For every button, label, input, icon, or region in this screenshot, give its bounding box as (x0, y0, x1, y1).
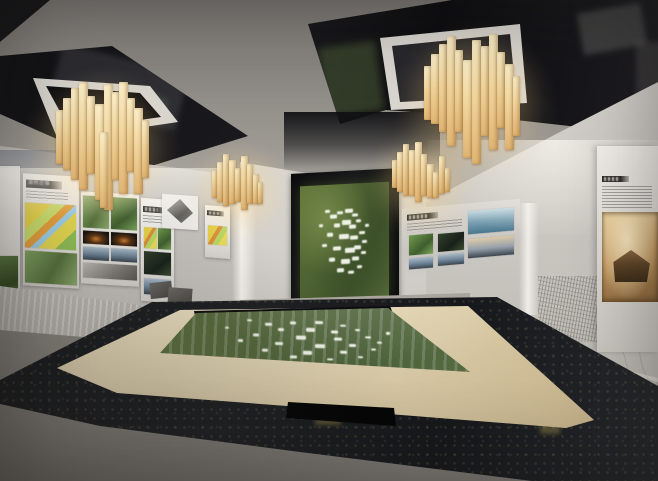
map-building-speckle (356, 220, 361, 223)
green-plan-image (409, 233, 433, 255)
map-building-speckle (253, 333, 259, 336)
photo-image (83, 246, 109, 261)
map-building-speckle (357, 265, 362, 268)
map-building-speckle (371, 348, 376, 350)
map-building-speckle (337, 268, 344, 272)
map-building-speckle (349, 344, 356, 347)
sand-table-map-buildings (160, 302, 470, 378)
map-building-speckle (345, 209, 353, 213)
blurred-title-text (604, 177, 620, 181)
map-building-speckle (296, 335, 306, 339)
map-building-speckle (325, 210, 330, 213)
map-building-speckle (340, 350, 347, 353)
map-building-speckle (341, 259, 350, 264)
exhibition-hall-render: 湖熟古镇 (0, 0, 658, 481)
map-building-speckle (315, 344, 325, 348)
map-building-speckle (349, 224, 356, 228)
map-building-speckle (265, 322, 272, 325)
panel-body-text (602, 186, 652, 208)
roof-artifact (610, 250, 652, 282)
map-building-speckle (315, 321, 323, 324)
map-building-speckle (331, 331, 338, 334)
map-building-speckle (290, 322, 296, 324)
map-building-speckle (358, 356, 363, 358)
photo-image (438, 253, 464, 266)
spotlight-wash (0, 168, 242, 218)
soffit-shadow (284, 112, 440, 172)
map-building-speckle (262, 348, 268, 351)
map-building-speckle (365, 336, 371, 338)
night-photo-image (111, 232, 137, 247)
map-building-speckle (348, 270, 354, 273)
photo-image (111, 248, 137, 263)
photo-image (409, 256, 433, 269)
map-building-speckle (354, 245, 361, 249)
map-building-speckle (319, 224, 323, 227)
map-building-speckle (365, 224, 369, 227)
map-building-speckle (386, 332, 390, 334)
artifact-niche (602, 212, 658, 302)
map-building-speckle (340, 324, 346, 326)
map-building-speckle (359, 231, 365, 234)
map-building-speckle (345, 247, 355, 253)
main-screen (291, 168, 399, 313)
map-building-speckle (334, 223, 340, 227)
photo-image (83, 262, 137, 280)
map-building-speckle (333, 246, 341, 250)
map-building-speckle (238, 339, 243, 341)
map-building-speckle (329, 257, 335, 261)
aerial-map-display (300, 182, 389, 301)
map-building-speckle (339, 234, 349, 240)
map-building-speckle (306, 328, 315, 332)
map-building-speckle (352, 256, 359, 260)
map-building-speckle (361, 251, 366, 254)
map-building-speckle (355, 329, 360, 331)
map-building-speckle (303, 351, 312, 355)
map-building-speckle (225, 327, 229, 329)
map-building-speckle (275, 342, 283, 345)
map-building-speckle (278, 328, 284, 331)
map-building-speckle (247, 319, 252, 321)
exhibit-panel-artifact (597, 146, 658, 352)
aerial-render-image (25, 250, 77, 285)
map-building-speckle (362, 240, 367, 243)
zoning-map-image (208, 225, 227, 245)
map-building-speckle (350, 236, 358, 240)
blurred-title-text (409, 214, 428, 220)
map-building-speckle (322, 244, 327, 247)
map-building-speckle (377, 342, 382, 344)
map-building-speckle (334, 338, 342, 341)
green-plan-image (158, 228, 171, 250)
map-building-speckle (352, 213, 358, 216)
map-building-speckle (327, 358, 333, 360)
panel-title-bar (602, 176, 629, 182)
zoning-map-image (144, 227, 157, 249)
map-building-speckle (330, 214, 337, 218)
map-building-speckle (290, 356, 297, 359)
aerial-photo-image (144, 251, 171, 276)
skyline-panorama-image (468, 235, 514, 258)
night-photo-image (83, 230, 109, 245)
map-building-speckle (327, 233, 333, 237)
map-building-speckle (337, 211, 343, 214)
